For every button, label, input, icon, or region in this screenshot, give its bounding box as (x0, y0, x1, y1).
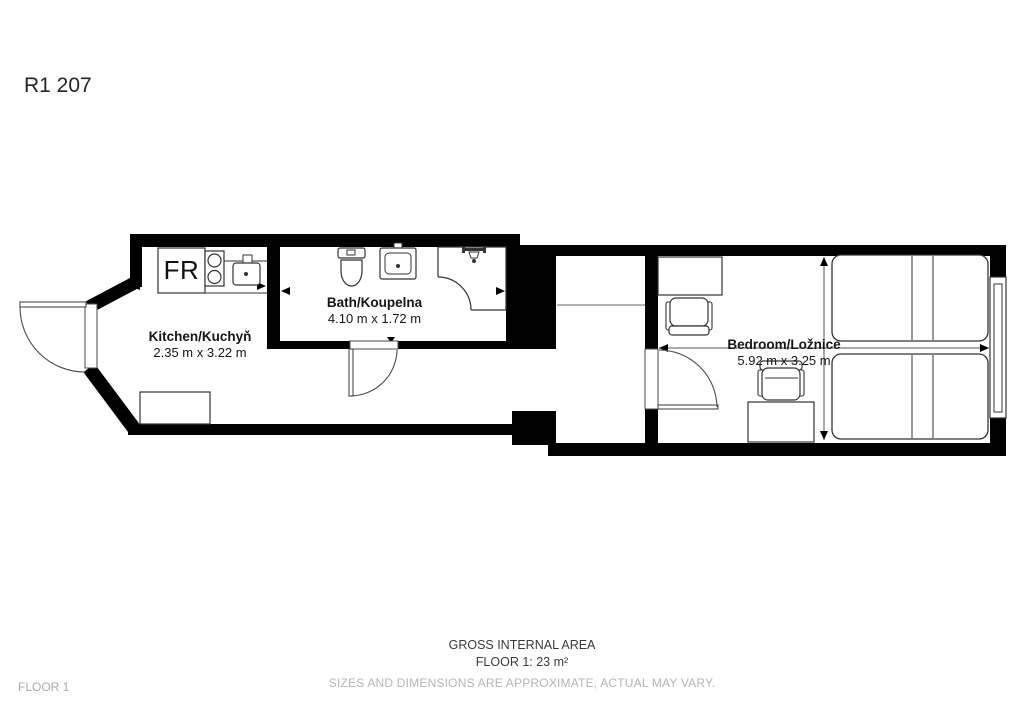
gross-area-title: GROSS INTERNAL AREA (22, 637, 1022, 654)
dimension-arrow (820, 257, 828, 266)
room-label-bath: Bath/Koupelna 4.10 m x 1.72 m (292, 295, 457, 327)
door-jamb (85, 304, 97, 368)
door-swing-arc (350, 350, 397, 396)
wall-right-lower (990, 418, 1006, 456)
kitchen-table (140, 392, 210, 424)
disclaimer-text: SIZES AND DIMENSIONS ARE APPROXIMATE, AC… (22, 676, 1022, 690)
stove (205, 251, 224, 286)
bathroom-door (349, 341, 398, 396)
kitchen-sink (233, 255, 260, 285)
room-name: Kitchen/Kuchyň (115, 329, 285, 345)
wall-bottom-right-section (548, 443, 1006, 456)
bathroom-sink (380, 243, 416, 279)
door-leaf (658, 405, 718, 409)
wall-bottom-kitchen (128, 424, 520, 435)
gross-area-block: GROSS INTERNAL AREA FLOOR 1: 23 m² (22, 637, 1022, 671)
room-dimensions: 5.92 m x 3.25 m (700, 353, 868, 369)
room-label-bedroom: Bedroom/Ložnice 5.92 m x 3.25 m (700, 337, 868, 369)
shower-head-icon (462, 246, 486, 263)
floor-label: FLOOR 1 (18, 680, 69, 694)
bedroom-desk-top (658, 257, 722, 295)
dimension-arrow (980, 344, 989, 352)
wall-chamfer-upper (89, 281, 138, 307)
window (990, 277, 1006, 418)
door-leaf (349, 349, 353, 396)
dimension-arrow (281, 287, 290, 295)
door-leaf (20, 302, 86, 307)
room-name: Bath/Koupelna (292, 295, 457, 311)
toilet (338, 248, 365, 286)
wall-top-left-section (130, 234, 520, 247)
room-dimensions: 2.35 m x 3.22 m (115, 345, 285, 361)
door-jamb (645, 349, 658, 409)
dimension-arrow (496, 287, 505, 295)
bedroom-desk-bottom (748, 402, 814, 442)
wall-bath-hall-block (506, 245, 556, 349)
fridge-label: FR (158, 248, 205, 293)
wall-step-block (512, 411, 556, 445)
room-label-kitchen: Kitchen/Kuchyň 2.35 m x 3.22 m (115, 329, 285, 361)
wall-bath-bottom-left (280, 341, 350, 349)
door-jamb (350, 341, 398, 349)
floor-area-value: FLOOR 1: 23 m² (22, 654, 1022, 671)
plan-title: R1 207 (24, 74, 92, 98)
room-dimensions: 4.10 m x 1.72 m (292, 311, 457, 327)
wall-bedroom-left-lower (645, 409, 658, 452)
wall-chamfer-lower (89, 368, 136, 431)
room-name: Bedroom/Ložnice (700, 337, 868, 353)
door-swing-arc (20, 307, 85, 372)
dimension-arrow (820, 431, 828, 440)
floorplan-canvas: R1 207 FR Kitchen/Kuchyň 2.35 m x 3.22 m… (0, 0, 1024, 724)
wall-bath-bottom-right (398, 341, 508, 349)
entry-door (20, 302, 97, 372)
bed (832, 255, 988, 341)
wall-bedroom-left-upper (645, 256, 658, 349)
desk-chair (666, 298, 712, 335)
wall-right-upper (990, 245, 1006, 278)
floorplan-drawing (0, 0, 1024, 724)
inner-walls (267, 245, 658, 452)
